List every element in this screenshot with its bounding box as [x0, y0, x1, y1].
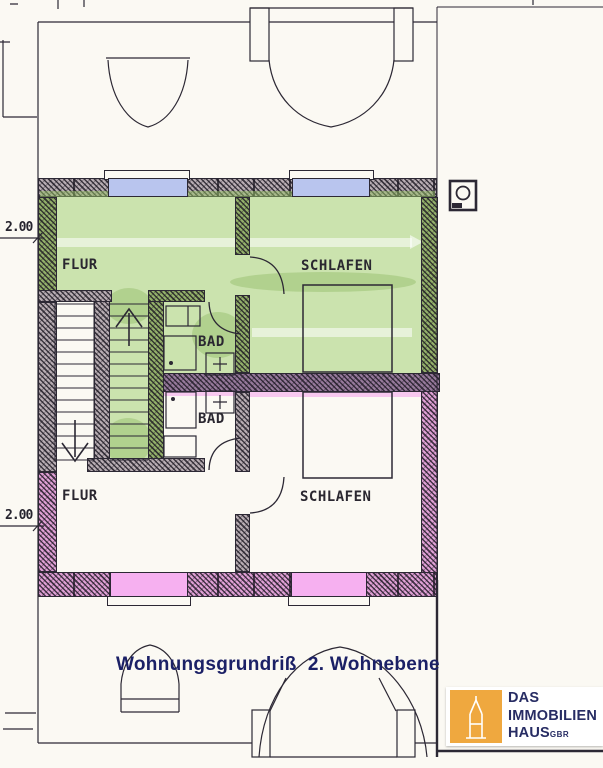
- bed-lower: [303, 392, 392, 478]
- room-label-schlafen-upper: SCHLAFEN: [301, 258, 372, 274]
- floorplan-page: FLUR SCHLAFEN BAD BAD FLUR SCHLAFEN 2.00…: [0, 0, 603, 768]
- room-label-flur-lower: FLUR: [62, 488, 98, 504]
- dimension-label-bottom: 2.00: [5, 508, 32, 523]
- logo-line-das: DAS: [508, 690, 597, 708]
- logo-line-haus: HAUSGBR: [508, 725, 597, 744]
- dormer-top-large: [250, 8, 413, 127]
- floorplan-linework: [0, 0, 603, 768]
- room-label-flur-upper: FLUR: [62, 257, 98, 273]
- stairs-down-arrow: [62, 420, 88, 461]
- logo-gbr-text: GBR: [550, 730, 569, 739]
- boundary-lines: [0, 0, 603, 757]
- room-label-bad-upper: BAD: [198, 334, 225, 350]
- dimension-label-top: 2.00: [5, 220, 32, 235]
- dormer-top-small: [106, 58, 190, 127]
- logo-text: DAS IMMOBILIEN HAUSGBR: [508, 690, 597, 744]
- roof-outline: [38, 22, 437, 743]
- room-label-schlafen-lower: SCHLAFEN: [300, 489, 371, 505]
- chimney-icon: [450, 181, 476, 210]
- bed-upper: [303, 285, 392, 372]
- room-label-bad-lower: BAD: [198, 411, 225, 427]
- page-title: Wohnungsgrundriß 2. Wohnebene: [116, 654, 440, 676]
- logo-haus-text: HAUS: [508, 725, 550, 741]
- logo-orange-square: [450, 690, 502, 743]
- door-arcs: [209, 257, 284, 513]
- logo-line-immobilien: IMMOBILIEN: [508, 708, 597, 726]
- company-logo: DAS IMMOBILIEN HAUSGBR: [446, 687, 603, 746]
- church-tower-icon: [450, 690, 502, 743]
